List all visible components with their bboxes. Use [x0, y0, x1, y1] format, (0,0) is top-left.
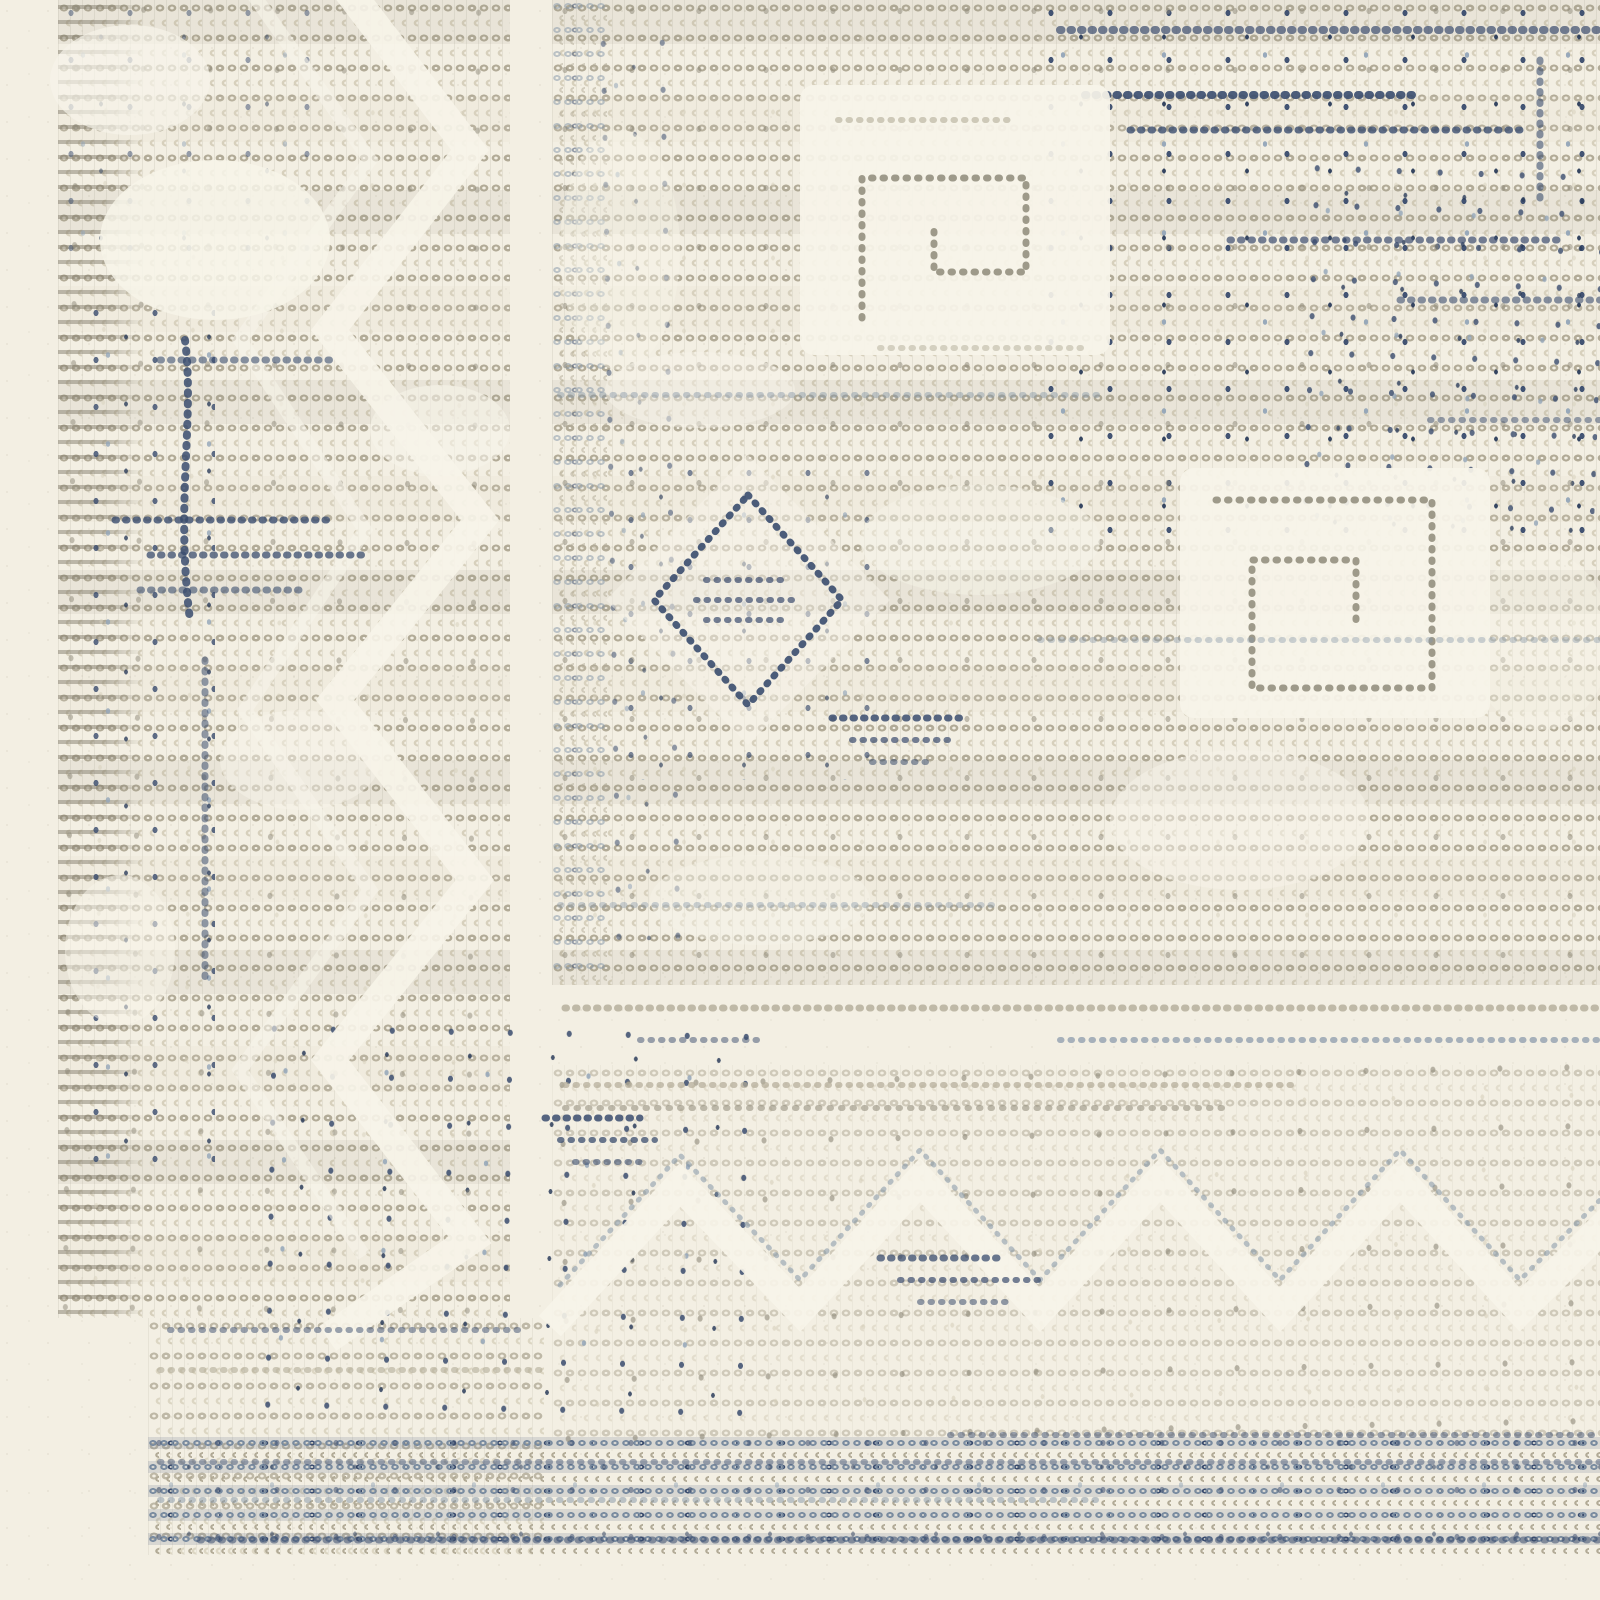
- cream-patch: [370, 385, 510, 475]
- cream-patch: [220, 710, 380, 810]
- cream-patch: [100, 160, 330, 320]
- cream-patch: [1110, 750, 1370, 890]
- cream-patch: [650, 855, 870, 945]
- motif-overlay: [0, 0, 1600, 1600]
- cream-patch: [50, 25, 210, 135]
- cream-patch: [65, 875, 175, 1025]
- bottom-stripe-motifs: [160, 1330, 1600, 1540]
- cream-patch: [560, 130, 680, 370]
- zigzag-motif: [330, 0, 480, 1330]
- cream-patch: [860, 485, 1100, 595]
- greek-key-panel: [800, 85, 1110, 355]
- rug-photo: [0, 0, 1600, 1600]
- left-band-motifs: [50, 0, 510, 1330]
- field-motifs: [560, 30, 1600, 945]
- indigo-accent-line: [184, 340, 190, 620]
- greek-key-panel: [1180, 468, 1490, 718]
- weave-break-and-lower-border-motifs: [545, 1008, 1600, 1315]
